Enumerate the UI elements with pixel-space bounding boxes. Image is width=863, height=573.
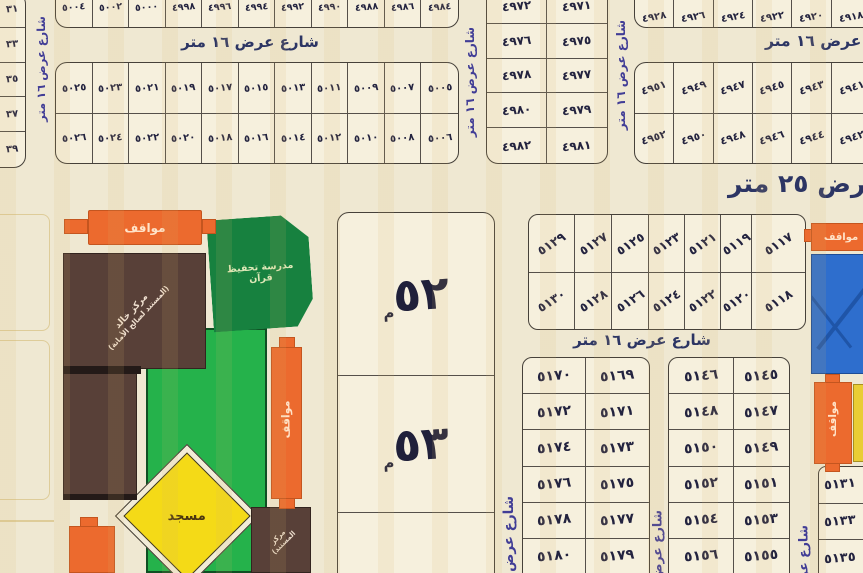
faint-plot-outline <box>0 340 50 500</box>
plot-cell: ٤٩٨٢ <box>487 128 547 163</box>
plot-cell: ٤٩٧١ <box>547 0 607 23</box>
faint-plot-outline <box>0 214 50 331</box>
street-label-vertical-mid-left: شارع عرض ١٦ متر <box>463 0 477 182</box>
plot-pair-row: ٤٩٧٨ ٤٩٧٧ <box>487 59 607 94</box>
school-block: مدرسة تحفيظ قرآن <box>206 214 315 333</box>
street-label-16m-left: شارع عرض ١٦ متر <box>150 33 350 51</box>
plot-block-5145-5156: ٥١٤٦ ٥١٤٥ ٥١٤٨ ٥١٤٧ ٥١٥٠ ٥١٤٩ ٥١٥٢ ٥١٥١ … <box>668 357 790 573</box>
plot-cell: ٥٠٠٩ <box>348 63 385 113</box>
plot-cell: ٤٩٤٩ <box>674 63 713 113</box>
plot-cell: ٥١٥٤ <box>669 503 734 538</box>
plot-cell: ٤٩١٨ <box>832 0 863 27</box>
plot-block-4951-4942: ٤٩٥١٤٩٤٩٤٩٤٧٤٩٤٥٤٩٤٣٤٩٤١ ٤٩٥٢٤٩٥٠٤٩٤٨٤٩٤… <box>634 62 863 164</box>
street-label-vertical-mid-right: شارع عرض ١٦ متر <box>614 0 628 170</box>
yellow-strip <box>853 384 863 462</box>
plot-pair-row: ٤٩٨٠ ٤٩٧٩ <box>487 93 607 128</box>
plot-54-partial <box>338 513 494 573</box>
plot-cell: ٤٩٩٤ <box>239 0 276 27</box>
plot-pair-row: ٥١٧٦ ٥١٧٥ <box>523 467 649 503</box>
street-label-vertical-right: شارع عرض ١٦ متر <box>796 463 811 573</box>
plot-cell: ٥١٥٣ <box>734 503 789 538</box>
plot-cell: ٥٠١٩ <box>166 63 203 113</box>
plot-cell: ٥٠١٨ <box>202 113 239 163</box>
plot-pair-row: ٥١٧٨ ٥١٧٧ <box>523 503 649 539</box>
plot-cell: ٥١٧٧ <box>586 503 649 538</box>
dark-strip <box>63 494 137 500</box>
plot-cell: ٥١٧٥ <box>586 467 649 502</box>
plot-cell: ٥٠١٣ <box>275 63 312 113</box>
parking-label: مواقف <box>89 211 201 244</box>
plot-cell: ٥١٤٧ <box>734 394 789 429</box>
left-edge-plot-column: ٣١٣٣٣٥٣٧٣٩ <box>0 0 26 168</box>
plot-cell: ٥١٣١ <box>819 467 863 504</box>
plot-cell: ٤٩٨٦ <box>385 0 422 27</box>
plot-cell: ٤٩٢٨ <box>635 0 674 27</box>
street-label-16m-mid: شارع عرض ١٦ متر <box>552 331 732 349</box>
plot-cell: ٥٠٢٠ <box>166 113 203 163</box>
plot-cell: ٤٩٨١ <box>547 128 607 163</box>
plot-52: ٥٢م <box>338 213 494 376</box>
plot-cell: ٥٠٠٤ <box>56 0 93 27</box>
plot-pair-row: ٥١٧٤ ٥١٧٣ <box>523 430 649 466</box>
plot-cell: ٣٥ <box>0 63 25 98</box>
plot-cell: ٥١٥٦ <box>669 539 734 573</box>
plot-cell: ٤٩٤٦ <box>753 113 792 163</box>
parking-tab <box>202 219 216 234</box>
plot-cell: ٥١٢٨ <box>575 272 612 329</box>
plot-cell: ٤٩٧٨ <box>487 59 547 93</box>
plot-cell: ٤٩٨٠ <box>487 93 547 127</box>
plot-cell: ٥١٥٠ <box>669 430 734 465</box>
plot-cell: ٥١٧٨ <box>523 503 586 538</box>
plot-cell: ٤٩٤٨ <box>714 113 753 163</box>
plot-cell: ٥٠٠٧ <box>385 63 422 113</box>
plot-cell: ٥٠١٢ <box>312 113 349 163</box>
plot-cell: ٤٩٢٢ <box>753 0 792 27</box>
plot-cell: ٥١٧٤ <box>523 430 586 465</box>
plot-pair-row: ٥١٤٨ ٥١٤٧ <box>669 394 789 430</box>
plot-cell: ٣٧ <box>0 97 25 132</box>
parking-tab <box>64 219 88 234</box>
plot-cell: ٥١٢٧ <box>575 215 612 272</box>
plot-cell: ٤٩٤١ <box>832 63 863 113</box>
parking-label-vertical: مواقف <box>280 380 293 460</box>
plot-cell: ٥١٤٥ <box>734 358 789 393</box>
plot-cell: ٥١٧٣ <box>586 430 649 465</box>
plot-pair-row: ٥١٧٢ ٥١٧١ <box>523 394 649 430</box>
parking-label-vertical: مواقف <box>827 384 839 454</box>
plot-53-label: ٥٣م <box>381 415 452 474</box>
blue-facility-block <box>811 254 863 374</box>
diagonal-mark <box>811 291 852 348</box>
plot-cell: ٥١١٧ <box>752 215 805 272</box>
plot-cell: ٥٠٠٥ <box>421 63 458 113</box>
parking-tab <box>825 463 840 472</box>
plot-cell: ٤٩٨٤ <box>421 0 458 27</box>
plot-cell: ٥٠١٧ <box>202 63 239 113</box>
plot-cell: ٥١٧١ <box>586 394 649 429</box>
plot-cell: ٤٩٧٩ <box>547 93 607 127</box>
plot-cell: ٤٩٥١ <box>635 63 674 113</box>
plot-cell: ٥٠١٠ <box>348 113 385 163</box>
plot-cell: ٤٩٧٥ <box>547 24 607 58</box>
plot-cell: ٤٩٩٦ <box>202 0 239 27</box>
plot-cell: ٥٠٠٢ <box>93 0 130 27</box>
plot-cell: ٣١ <box>0 0 25 28</box>
plot-cell: ٥٠١٥ <box>239 63 276 113</box>
parking-sign-right: مواقف <box>811 223 863 251</box>
plot-pair-row: ٥١٥٤ ٥١٥٣ <box>669 503 789 539</box>
plot-pair-row: ٥١٤٦ ٥١٤٥ <box>669 358 789 394</box>
plot-53: ٥٣م <box>338 376 494 513</box>
plot-cell: ٥١٢٩ <box>529 215 575 272</box>
parking-label: مواقف <box>812 224 863 250</box>
plot-cell: ٥٠١٦ <box>239 113 276 163</box>
plot-block-5169-5180: ٥١٧٠ ٥١٦٩ ٥١٧٢ ٥١٧١ ٥١٧٤ ٥١٧٣ ٥١٧٦ ٥١٧٥ … <box>522 357 650 573</box>
plot-cell: ٥٠٢٢ <box>129 113 166 163</box>
plot-cell: ٥١٧٦ <box>523 467 586 502</box>
plot-cell: ٥١٢٢ <box>685 272 721 329</box>
plot-cell: ٥٠١٤ <box>275 113 312 163</box>
plot-cell: ٥١٧٩ <box>586 539 649 573</box>
plot-cell: ٥١٧٢ <box>523 394 586 429</box>
plot-cell: ٥١٢٣ <box>649 215 685 272</box>
plot-cell: ٥٠٢٤ <box>93 113 130 163</box>
plot-column-5131-5135: ٥١٣١٥١٣٣٥١٣٥ <box>818 466 863 573</box>
plot-cell: ٥١١٨ <box>752 272 805 329</box>
plot-row-5004-4984: ٥٠٠٤٥٠٠٢٥٠٠٠٤٩٩٨٤٩٩٦٤٩٩٤٤٩٩٢٤٩٩٠٤٩٨٨٤٩٨٦… <box>55 0 459 28</box>
plot-cell: ٥٠٠٨ <box>385 113 422 163</box>
plot-cell: ٥١٤٦ <box>669 358 734 393</box>
plot-cell: ٤٩٤٥ <box>753 63 792 113</box>
school-label-line2: قرآن <box>249 272 273 285</box>
plot-cell: ٤٩٧٧ <box>547 59 607 93</box>
plot-cell: ٥٠١١ <box>312 63 349 113</box>
plot-pair-row: ٥١٥٦ ٥١٥٥ <box>669 539 789 573</box>
plot-cell: ٤٩٧٢ <box>487 0 547 23</box>
plot-cell: ٤٩٩٢ <box>275 0 312 27</box>
plot-cell: ٥١٥١ <box>734 467 789 502</box>
plot-cell: ٤٩٤٢ <box>832 113 863 163</box>
plot-cell: ٥٠٢٦ <box>56 113 93 163</box>
plot-row-4928-4918: ٤٩٢٨٤٩٢٦٤٩٢٤٤٩٢٢٤٩٢٠٤٩١٨ <box>634 0 863 28</box>
plot-cell: ٤٩٩٨ <box>166 0 203 27</box>
plot-cell: ٥١٨٠ <box>523 539 586 573</box>
plot-52-label: ٥٢م <box>381 265 452 324</box>
plot-cell: ٥١٣٣ <box>819 504 863 541</box>
street-label-25m: شارع عرض ٢٥ متر <box>728 169 863 198</box>
plot-cell: ٥١٤٨ <box>669 394 734 429</box>
faint-plot-line <box>0 520 54 522</box>
plot-block-5117-5130: ٥١٢٩٥١٢٧٥١٢٥٥١٢٣٥١٢١٥١١٩٥١١٧ ٥١٣٠٥١٢٨٥١٢… <box>528 214 806 330</box>
plot-cell: ٥١٢٥ <box>612 215 649 272</box>
plot-cell: ٤٩٥٠ <box>674 113 713 163</box>
plot-cell: ٥٠٠٦ <box>421 113 458 163</box>
plot-pair-row: ٤٩٧٢ ٤٩٧١ <box>487 0 607 24</box>
plot-cell: ٤٩٨٨ <box>348 0 385 27</box>
mosque-label: مسجد <box>168 509 206 524</box>
plot-pair-row: ٥١٧٠ ٥١٦٩ <box>523 358 649 394</box>
plot-pair-row: ٥١٥٠ ٥١٤٩ <box>669 430 789 466</box>
parking-sign-bottom-left <box>69 526 115 573</box>
plot-cell: ٥٠٢٣ <box>93 63 130 113</box>
plot-pair-row: ٥١٨٠ ٥١٧٩ <box>523 539 649 573</box>
cadastral-map: ٣١٣٣٣٥٣٧٣٩ ٥٠٠٤٥٠٠٢٥٠٠٠٤٩٩٨٤٩٩٦٤٩٩٤٤٩٩٢٤… <box>0 0 863 573</box>
plot-pair-row: ٤٩٧٦ ٤٩٧٥ <box>487 24 607 59</box>
plot-cell: ٤٩٩٠ <box>312 0 349 27</box>
plot-pair-row: ٥١٥٢ ٥١٥١ <box>669 467 789 503</box>
plot-cell: ٥٠٠٠ <box>129 0 166 27</box>
plot-cell: ٤٩٢٠ <box>792 0 831 27</box>
plot-block-4971-4982: ٤٩٧٢ ٤٩٧١ ٤٩٧٦ ٤٩٧٥ ٤٩٧٨ ٤٩٧٧ ٤٩٨٠ ٤٩٧٩ … <box>486 0 608 164</box>
plot-cell: ٤٩٢٦ <box>674 0 713 27</box>
street-label-16m-right: شارع عرض ١٦ متر <box>765 32 863 50</box>
plot-block-5025-5006: ٥٠٢٥٥٠٢٣٥٠٢١٥٠١٩٥٠١٧٥٠١٥٥٠١٣٥٠١١٥٠٠٩٥٠٠٧… <box>55 62 459 164</box>
plot-cell: ٥١٢٠ <box>721 272 752 329</box>
plot-pair-row: ٤٩٨٢ ٤٩٨١ <box>487 128 607 163</box>
plot-cell: ٤٩٥٢ <box>635 113 674 163</box>
street-label-vertical-tables: شارع عرض ١٦ متر <box>650 453 665 573</box>
plot-block-52-53: ٥٢م ٥٣م <box>337 212 495 573</box>
plot-cell: ٤٩٤٣ <box>792 63 831 113</box>
plot-cell: ٥١٥٢ <box>669 467 734 502</box>
plot-cell: ٣٩ <box>0 132 25 167</box>
plot-cell: ٥٠٢٥ <box>56 63 93 113</box>
street-label-vertical-far-left: شارع عرض ١٦ متر <box>34 0 48 164</box>
plot-cell: ٥٠٢١ <box>129 63 166 113</box>
plot-cell: ٥١١٩ <box>721 215 752 272</box>
parking-sign-top: مواقف <box>88 210 202 245</box>
plot-cell: ٤٩٤٧ <box>714 63 753 113</box>
plot-cell: ٥١٦٩ <box>586 358 649 393</box>
plot-cell: ٥١٢٦ <box>612 272 649 329</box>
plot-cell: ٥١٧٠ <box>523 358 586 393</box>
plot-cell: ٥١٤٩ <box>734 430 789 465</box>
plot-cell: ٥١٢١ <box>685 215 721 272</box>
plot-cell: ٤٩٧٦ <box>487 24 547 58</box>
plot-cell: ٥١٥٥ <box>734 539 789 573</box>
plot-cell: ٤٩٤٤ <box>792 113 831 163</box>
plot-cell: ٣٣ <box>0 28 25 63</box>
plot-cell: ٥١٢٤ <box>649 272 685 329</box>
street-label-vertical-plots: شارع عرض ١٦ متر <box>501 418 517 573</box>
plot-cell: ٥١٣٥ <box>819 540 863 573</box>
plot-cell: ٤٩٢٤ <box>714 0 753 27</box>
plot-cell: ٥١٣٠ <box>529 272 575 329</box>
